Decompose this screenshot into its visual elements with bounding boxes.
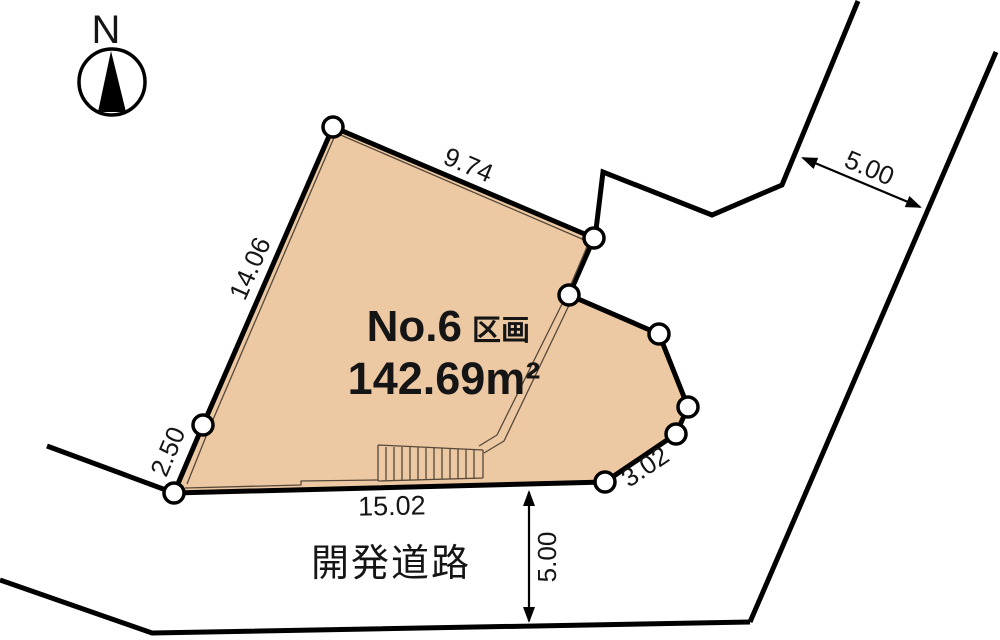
parcel-area: 142.69m² xyxy=(348,353,541,404)
dim-road-width-upper-right: 5.00 xyxy=(840,144,898,191)
boundary-point xyxy=(649,324,669,344)
parcel-number: No.6 xyxy=(367,302,462,351)
road-edge-right xyxy=(750,52,996,622)
dim-bottom-edge: 15.02 xyxy=(358,490,426,521)
plot-plan-canvas: N 9.74 14.06 2.50 15.02 3.02 5.00 5.00 N… xyxy=(0,0,1000,640)
boundary-point xyxy=(584,228,604,248)
boundary-point xyxy=(323,117,343,137)
road-name-label: 開発道路 xyxy=(311,543,471,585)
plot-plan-page: N 9.74 14.06 2.50 15.02 3.02 5.00 5.00 N… xyxy=(0,0,1000,640)
boundary-point xyxy=(678,397,698,417)
road-edge-bottom xyxy=(0,580,750,633)
boundary-point xyxy=(193,415,213,435)
boundary-point xyxy=(559,285,579,305)
dim-road-width-bottom: 5.00 xyxy=(532,532,562,583)
boundary-point xyxy=(666,424,686,444)
boundary-point xyxy=(164,483,184,503)
road-edge-upper-jog xyxy=(595,1,858,238)
parcel-number-suffix: 区画 xyxy=(472,315,530,347)
north-label: N xyxy=(92,8,121,52)
boundary-point xyxy=(595,472,615,492)
north-compass: N xyxy=(79,8,145,115)
